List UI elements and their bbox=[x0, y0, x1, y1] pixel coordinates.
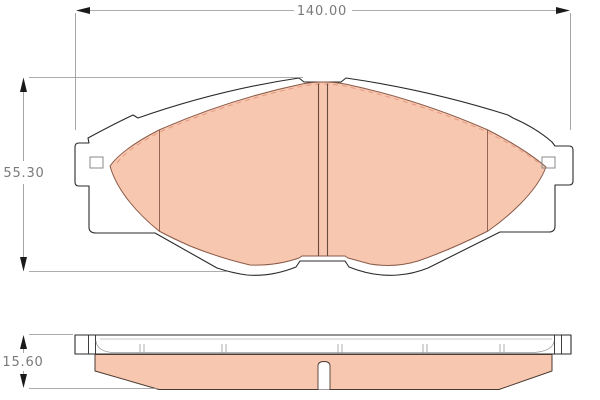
side-view bbox=[75, 335, 571, 390]
front-view bbox=[75, 78, 573, 275]
thickness-arrow-top bbox=[20, 335, 27, 349]
width-arrow-left bbox=[76, 7, 90, 14]
height-dimension-label: 55.30 bbox=[3, 166, 44, 181]
thickness-dimension-label: 15.60 bbox=[2, 355, 43, 370]
height-arrow-top bbox=[20, 78, 27, 93]
backing-plate-side bbox=[75, 335, 571, 354]
center-slot-side bbox=[318, 362, 330, 390]
thickness-arrow-bottom bbox=[20, 374, 27, 388]
drawing-page: 140.00 55.30 15.60 bbox=[0, 0, 600, 400]
technical-drawing-canvas: 140.00 55.30 15.60 bbox=[0, 0, 600, 400]
width-arrow-right bbox=[556, 7, 570, 14]
height-arrow-bottom bbox=[20, 257, 27, 272]
width-dimension-label: 140.00 bbox=[297, 4, 347, 19]
